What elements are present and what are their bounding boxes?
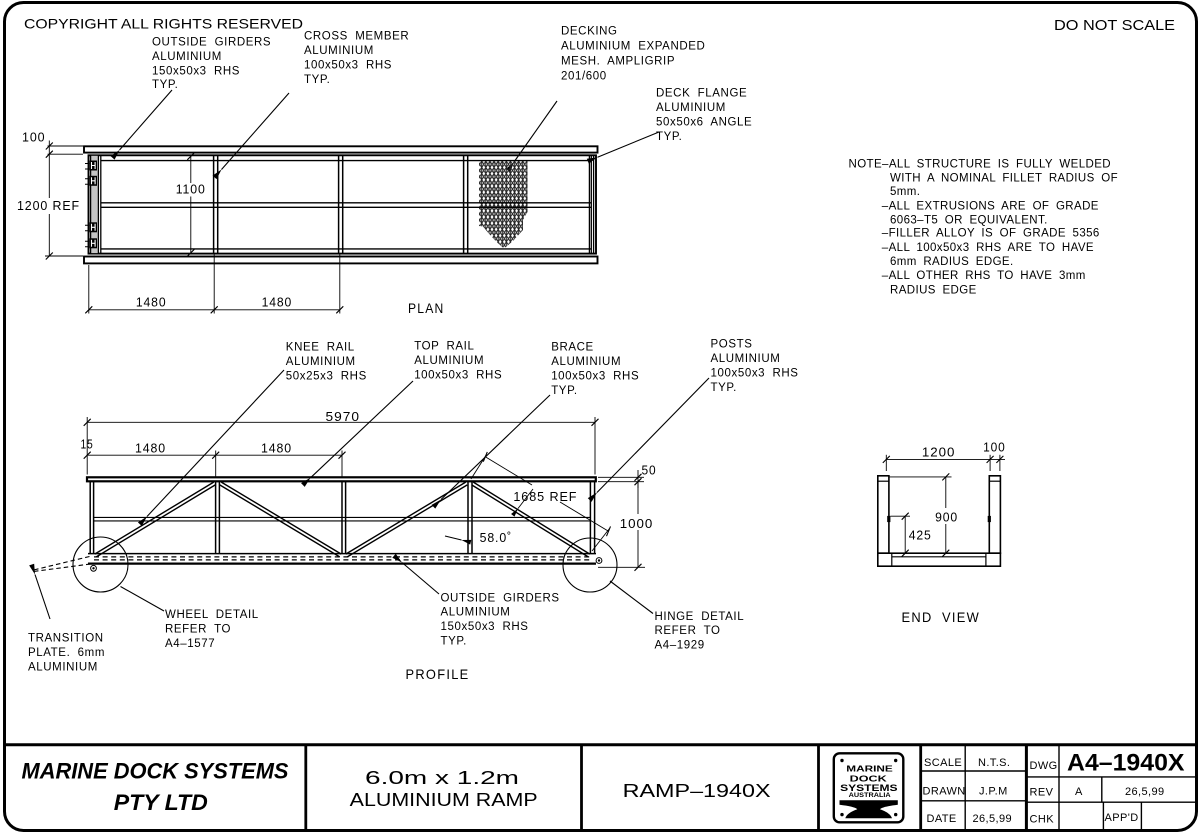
svg-text:HINGE DETAIL: HINGE DETAIL — [655, 611, 745, 623]
svg-text:–FILLER ALLOY IS OF GRADE 5356: –FILLER ALLOY IS OF GRADE 5356 — [882, 228, 1100, 240]
svg-text:CHK: CHK — [1030, 814, 1055, 826]
svg-text:6mm RADIUS EDGE.: 6mm RADIUS EDGE. — [890, 256, 1014, 268]
svg-text:COPYRIGHT ALL RIGHTS RESERVED: COPYRIGHT ALL RIGHTS RESERVED — [24, 16, 303, 32]
svg-text:DATE: DATE — [927, 813, 957, 825]
svg-text:NOTE–ALL STRUCTURE IS FULLY WE: NOTE–ALL STRUCTURE IS FULLY WELDED — [849, 159, 1111, 171]
svg-text:50x25x3 RHS: 50x25x3 RHS — [286, 371, 367, 383]
svg-text:ALUMINIUM EXPANDED: ALUMINIUM EXPANDED — [561, 41, 705, 53]
svg-text:50x50x6 ANGLE: 50x50x6 ANGLE — [656, 117, 752, 129]
svg-text:TYP.: TYP. — [711, 382, 737, 394]
svg-text:201/600: 201/600 — [561, 71, 607, 83]
svg-text:MARINE DOCK SYSTEMS: MARINE DOCK SYSTEMS — [22, 759, 289, 784]
svg-text:PLAN: PLAN — [408, 300, 445, 316]
svg-text:BRACE: BRACE — [551, 342, 594, 354]
svg-text:A4–1577: A4–1577 — [165, 638, 215, 650]
svg-text:900: 900 — [935, 511, 958, 525]
svg-text:6063–T5 OR EQUIVALENT.: 6063–T5 OR EQUIVALENT. — [890, 214, 1048, 226]
svg-text:OUTSIDE GIRDERS: OUTSIDE GIRDERS — [152, 37, 271, 49]
svg-text:6.0m x 1.2m: 6.0m x 1.2m — [365, 767, 519, 788]
svg-text:ALUMINIUM: ALUMINIUM — [286, 356, 356, 368]
svg-text:DO NOT SCALE: DO NOT SCALE — [1054, 17, 1175, 34]
svg-text:50: 50 — [642, 464, 657, 478]
svg-text:1480: 1480 — [136, 296, 167, 310]
svg-text:26,5,99: 26,5,99 — [973, 813, 1013, 825]
svg-text:J.P.M: J.P.M — [979, 786, 1008, 798]
svg-text:ALUMINIUM: ALUMINIUM — [441, 607, 511, 619]
svg-text:1480: 1480 — [135, 441, 166, 455]
svg-text:CROSS MEMBER: CROSS MEMBER — [304, 31, 409, 43]
svg-text:1685 REF: 1685 REF — [513, 490, 577, 504]
svg-text:TYP.: TYP. — [551, 385, 577, 397]
svg-text:150x50x3 RHS: 150x50x3 RHS — [152, 66, 240, 78]
svg-text:1200: 1200 — [922, 446, 956, 460]
svg-text:REFER TO: REFER TO — [655, 625, 721, 637]
svg-text:POSTS: POSTS — [711, 339, 753, 351]
svg-text:MARINE: MARINE — [846, 764, 893, 774]
svg-text:425: 425 — [909, 529, 932, 543]
svg-text:1480: 1480 — [262, 296, 293, 310]
svg-text:TYP.: TYP. — [441, 636, 467, 648]
svg-text:100x50x3 RHS: 100x50x3 RHS — [304, 60, 392, 72]
svg-text:ALUMINIUM RAMP: ALUMINIUM RAMP — [350, 789, 538, 810]
svg-text:REV: REV — [1030, 787, 1054, 799]
svg-text:END VIEW: END VIEW — [902, 609, 981, 625]
svg-text:AUSTRALIA: AUSTRALIA — [849, 793, 892, 799]
svg-text:100x50x3 RHS: 100x50x3 RHS — [711, 368, 799, 380]
svg-text:ALUMINIUM: ALUMINIUM — [414, 355, 484, 367]
svg-text:APP'D: APP'D — [1105, 812, 1139, 824]
svg-text:ALUMINIUM: ALUMINIUM — [711, 353, 781, 365]
svg-text:26,5,99: 26,5,99 — [1125, 786, 1165, 798]
svg-text:TOP RAIL: TOP RAIL — [414, 341, 474, 353]
svg-text:100: 100 — [983, 441, 1006, 455]
svg-text:RADIUS EDGE: RADIUS EDGE — [890, 285, 977, 297]
svg-text:WHEEL DETAIL: WHEEL DETAIL — [165, 609, 259, 621]
svg-text:5970: 5970 — [326, 410, 361, 424]
svg-text:DOCK: DOCK — [850, 774, 888, 784]
svg-text:A: A — [1075, 786, 1083, 798]
svg-text:A4–1929: A4–1929 — [655, 640, 705, 652]
svg-text:OUTSIDE GIRDERS: OUTSIDE GIRDERS — [441, 593, 560, 605]
svg-text:1100: 1100 — [176, 183, 206, 197]
svg-text:WITH A NOMINAL FILLET RADIUS O: WITH A NOMINAL FILLET RADIUS OF — [890, 173, 1118, 185]
svg-text:100x50x3 RHS: 100x50x3 RHS — [414, 370, 502, 382]
svg-text:A4–1940X: A4–1940X — [1067, 750, 1185, 777]
svg-text:PTY LTD: PTY LTD — [114, 790, 208, 815]
svg-text:ALUMINIUM: ALUMINIUM — [152, 51, 222, 63]
svg-text:1200 REF: 1200 REF — [17, 199, 80, 213]
svg-text:ALUMINIUM: ALUMINIUM — [656, 102, 726, 114]
svg-text:–ALL OTHER RHS TO HAVE 3mm: –ALL OTHER RHS TO HAVE 3mm — [882, 270, 1086, 282]
svg-text:TYP.: TYP. — [152, 79, 178, 91]
svg-text:PROFILE: PROFILE — [406, 666, 470, 682]
svg-text:RAMP–1940X: RAMP–1940X — [623, 780, 771, 801]
svg-text:58.0˚: 58.0˚ — [480, 531, 512, 545]
svg-text:ALUMINIUM: ALUMINIUM — [304, 45, 374, 57]
svg-text:DRAWN: DRAWN — [923, 786, 966, 798]
svg-text:100: 100 — [22, 131, 46, 145]
svg-text:5mm.: 5mm. — [890, 186, 920, 198]
svg-text:MESH. AMPLIGRIP: MESH. AMPLIGRIP — [561, 56, 675, 68]
svg-text:DECK FLANGE: DECK FLANGE — [656, 88, 747, 100]
svg-text:N.T.S.: N.T.S. — [978, 757, 1010, 769]
svg-text:ALUMINIUM: ALUMINIUM — [551, 356, 621, 368]
svg-text:150x50x3 RHS: 150x50x3 RHS — [441, 621, 529, 633]
svg-text:KNEE RAIL: KNEE RAIL — [286, 342, 355, 354]
svg-text:100x50x3 RHS: 100x50x3 RHS — [551, 371, 639, 383]
svg-text:–ALL EXTRUSIONS ARE OF GRADE: –ALL EXTRUSIONS ARE OF GRADE — [882, 200, 1099, 212]
svg-text:15: 15 — [81, 438, 94, 452]
svg-text:TYP.: TYP. — [656, 131, 682, 143]
svg-text:–ALL 100x50x3 RHS ARE TO HAVE: –ALL 100x50x3 RHS ARE TO HAVE — [882, 242, 1094, 254]
svg-text:1000: 1000 — [620, 517, 654, 531]
svg-text:DWG: DWG — [1030, 760, 1058, 772]
svg-text:TYP.: TYP. — [304, 74, 330, 86]
svg-text:REFER TO: REFER TO — [165, 624, 231, 636]
svg-text:ALUMINIUM: ALUMINIUM — [28, 662, 98, 674]
svg-text:PLATE. 6mm: PLATE. 6mm — [28, 647, 105, 659]
svg-text:TRANSITION: TRANSITION — [28, 633, 104, 645]
svg-text:SCALE: SCALE — [924, 757, 962, 769]
svg-text:DECKING: DECKING — [561, 26, 618, 38]
svg-text:1480: 1480 — [261, 441, 292, 455]
